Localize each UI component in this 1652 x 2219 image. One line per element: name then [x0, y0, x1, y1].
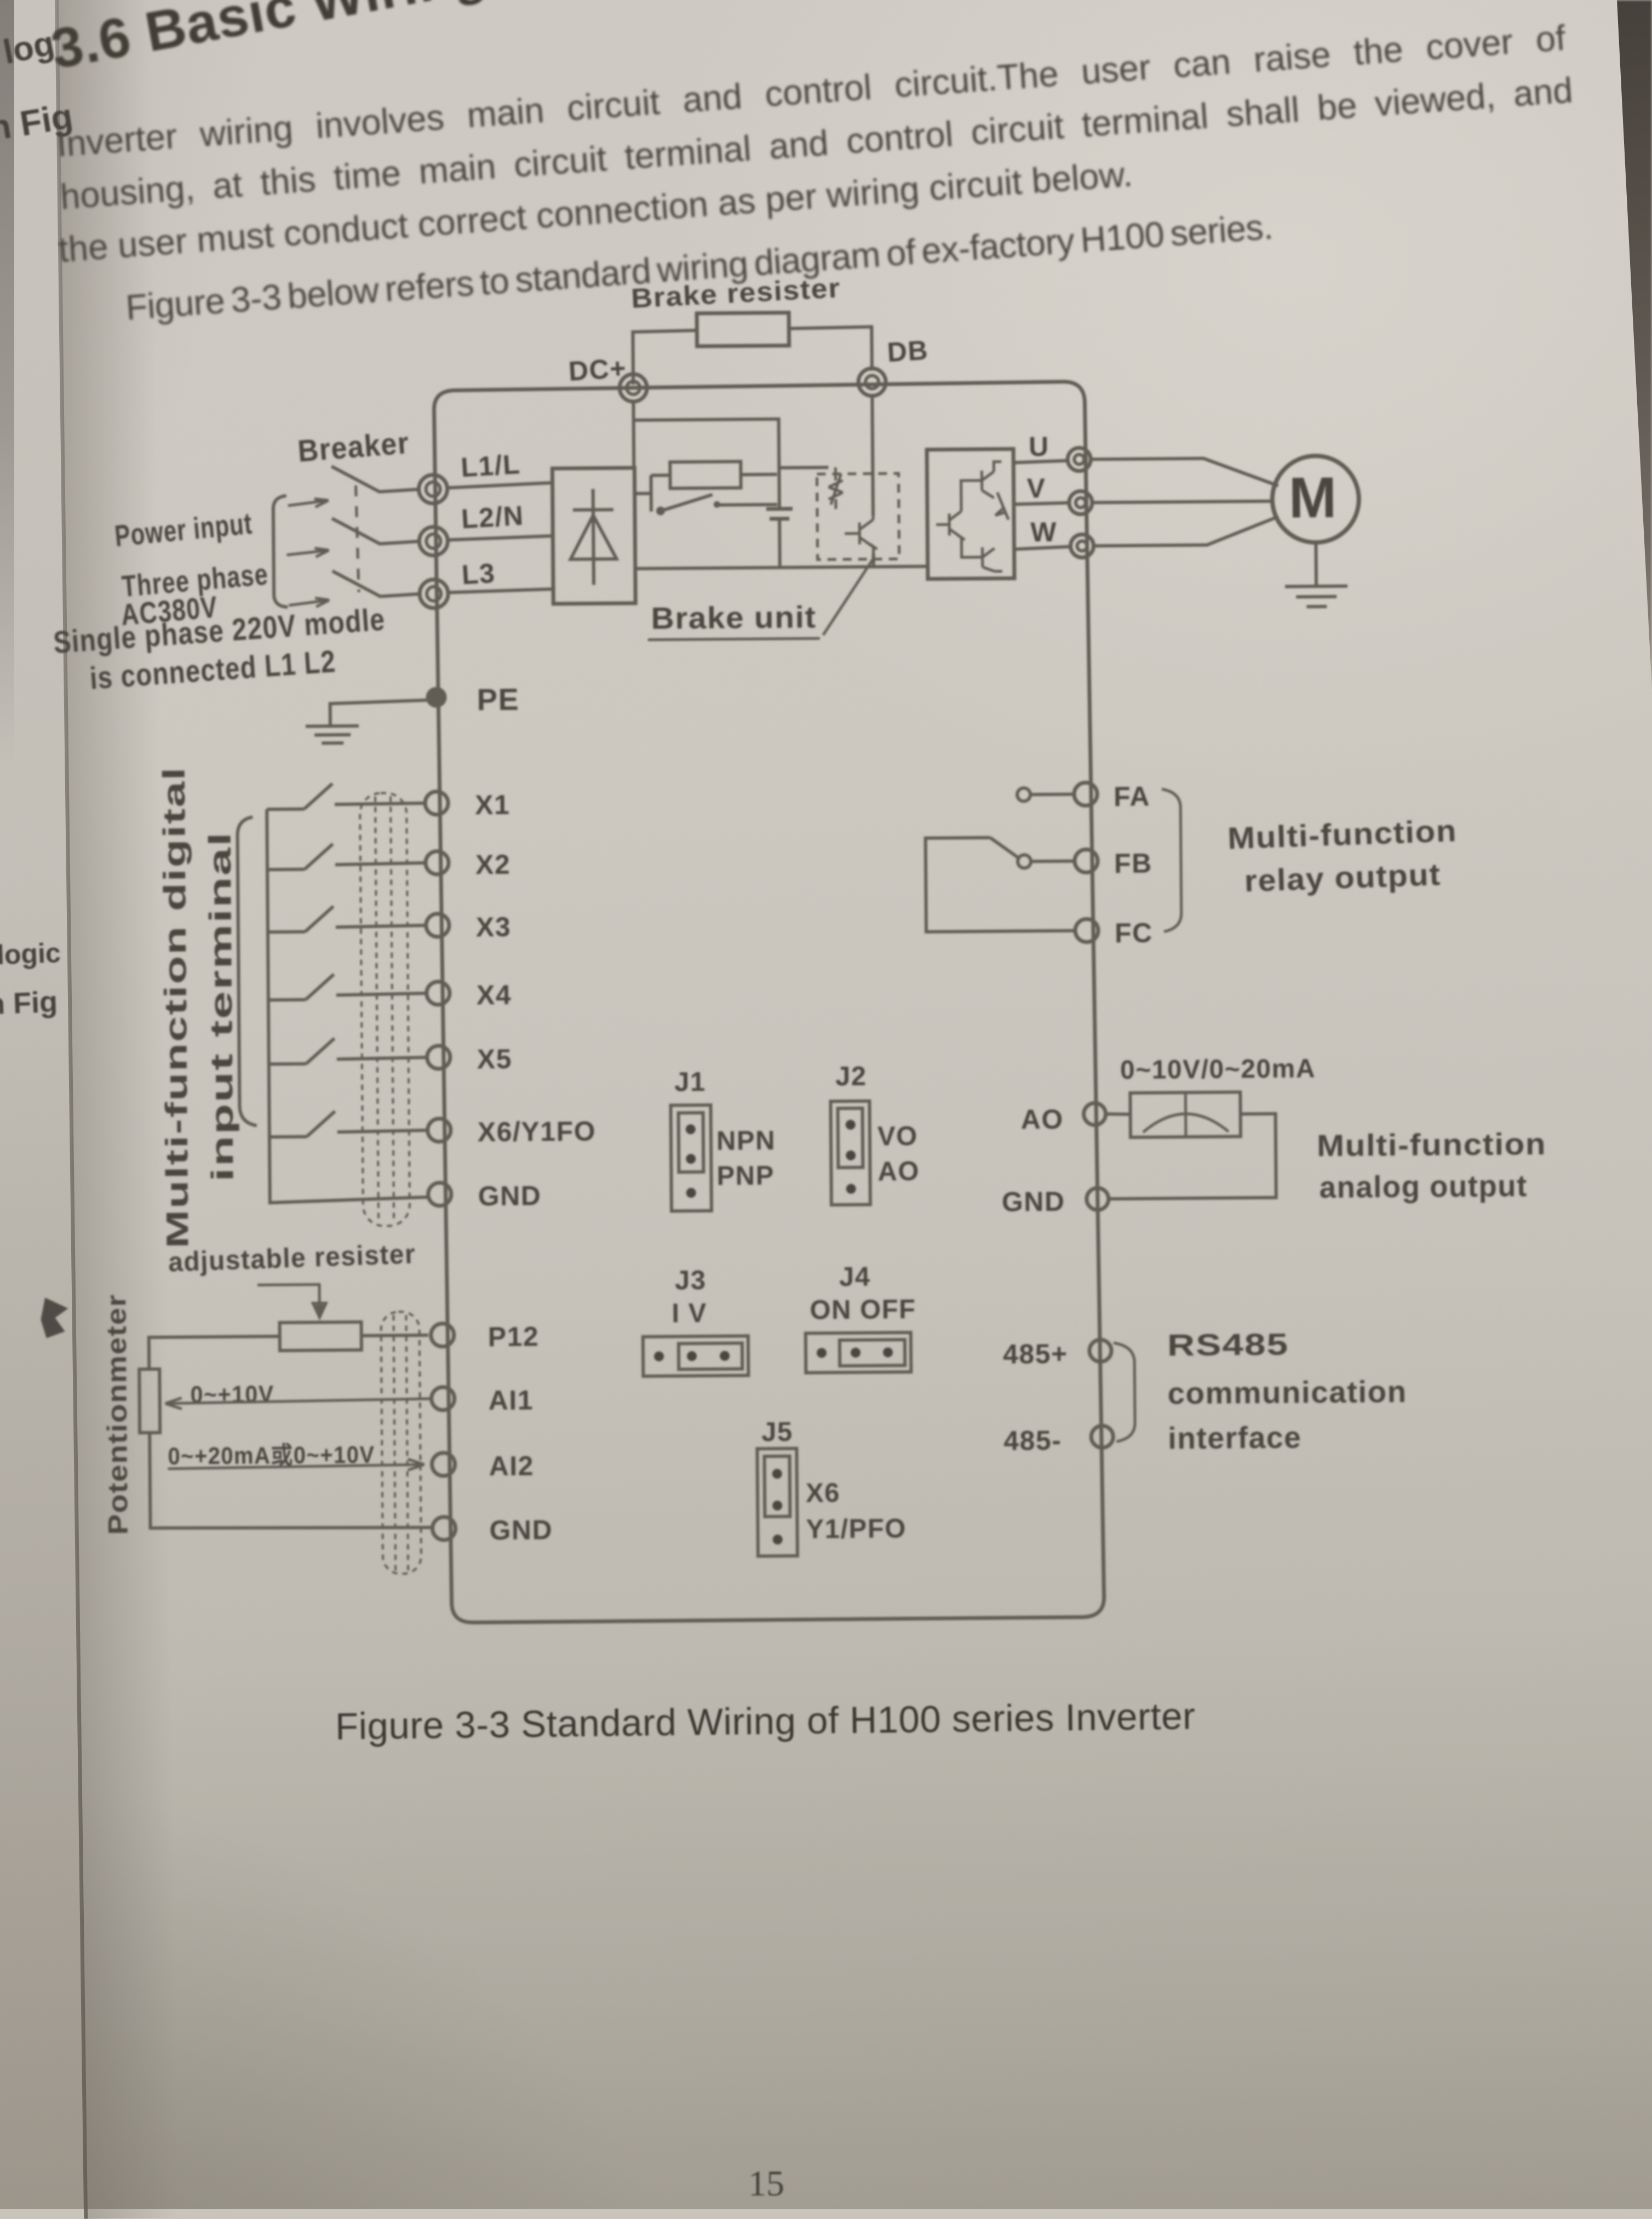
- svg-text:W: W: [1030, 517, 1057, 547]
- svg-text:Brake resister: Brake resister: [630, 272, 841, 314]
- svg-text:FA: FA: [1114, 781, 1150, 812]
- svg-text:relay output: relay output: [1244, 857, 1442, 898]
- svg-text:GND: GND: [478, 1180, 542, 1211]
- svg-text:analog output: analog output: [1319, 1168, 1527, 1204]
- svg-text:X5: X5: [477, 1044, 513, 1075]
- svg-text:X1: X1: [475, 790, 510, 821]
- svg-text:485+: 485+: [1003, 1339, 1068, 1370]
- svg-text:X6: X6: [806, 1478, 840, 1508]
- svg-text:U: U: [1029, 431, 1049, 462]
- svg-text:FC: FC: [1115, 917, 1153, 948]
- svg-text:M: M: [1288, 466, 1336, 530]
- svg-text:PE: PE: [477, 682, 519, 717]
- svg-text:Breaker: Breaker: [296, 425, 410, 468]
- svg-text:AI1: AI1: [488, 1385, 534, 1416]
- svg-text:Potentionmeter: Potentionmeter: [101, 1294, 133, 1535]
- svg-text:DB: DB: [886, 335, 929, 368]
- svg-text:X4: X4: [477, 980, 512, 1011]
- svg-text:ON OFF: ON OFF: [810, 1295, 916, 1325]
- svg-text:J5: J5: [761, 1417, 793, 1447]
- svg-text:interface: interface: [1168, 1420, 1301, 1455]
- svg-text:AO: AO: [877, 1157, 920, 1187]
- svg-text:RS485: RS485: [1167, 1327, 1289, 1363]
- svg-text:input terminal: input terminal: [203, 831, 240, 1182]
- svg-text:GND: GND: [489, 1514, 553, 1546]
- svg-text:Multi-function: Multi-function: [1227, 813, 1458, 855]
- svg-text:VO: VO: [877, 1122, 918, 1152]
- svg-text:PNP: PNP: [716, 1161, 775, 1191]
- svg-text:Brake unit: Brake unit: [651, 599, 816, 635]
- svg-text:J3: J3: [675, 1266, 707, 1295]
- svg-text:NPN: NPN: [716, 1126, 776, 1156]
- svg-text:X6/Y1FO: X6/Y1FO: [478, 1116, 596, 1147]
- svg-text:Y1/PFO: Y1/PFO: [806, 1514, 907, 1544]
- svg-text:V: V: [1026, 473, 1046, 504]
- svg-text:AI2: AI2: [489, 1450, 534, 1482]
- svg-text:P12: P12: [488, 1321, 540, 1352]
- svg-text:DC+: DC+: [567, 353, 627, 387]
- svg-text:485-: 485-: [1003, 1425, 1062, 1456]
- svg-text:FB: FB: [1114, 848, 1152, 879]
- svg-text:0~10V/0~20mA: 0~10V/0~20mA: [1120, 1054, 1316, 1085]
- svg-text:L1/L: L1/L: [460, 449, 521, 483]
- svg-text:communication: communication: [1167, 1374, 1407, 1410]
- svg-text:AO: AO: [1020, 1104, 1063, 1135]
- svg-text:L3: L3: [461, 558, 496, 591]
- svg-text:J4: J4: [839, 1262, 871, 1292]
- svg-text:X3: X3: [476, 912, 512, 943]
- svg-text:J1: J1: [674, 1067, 706, 1097]
- svg-text:Multi-function digital: Multi-function digital: [157, 766, 196, 1248]
- svg-text:J2: J2: [835, 1062, 867, 1091]
- svg-text:GND: GND: [1002, 1186, 1065, 1217]
- svg-text:X2: X2: [475, 849, 511, 880]
- svg-text:adjustable resister: adjustable resister: [168, 1238, 416, 1277]
- svg-text:I V: I V: [672, 1299, 707, 1329]
- svg-text:L2/N: L2/N: [460, 500, 525, 535]
- svg-text:Power input: Power input: [113, 506, 254, 553]
- svg-text:Multi-function: Multi-function: [1317, 1126, 1546, 1163]
